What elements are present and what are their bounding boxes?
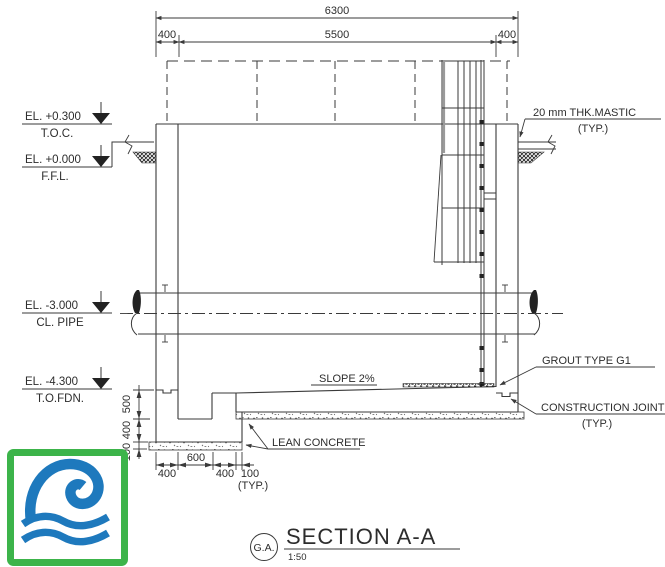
mastic-typ-label: (TYP.) (578, 123, 608, 135)
dim-right-wall: 400 (498, 29, 516, 41)
lean-leader-lower (246, 445, 268, 449)
drawing-title: G.A. SECTION A-A 1:50 (251, 524, 461, 563)
dim-interior: 5500 (325, 29, 349, 41)
dim-b1: 400 (158, 468, 176, 480)
elevation-markers (22, 102, 112, 389)
ground-left (112, 135, 156, 167)
mastic-leader (520, 119, 525, 137)
note-grout: GROUT TYPE G1 (500, 355, 655, 385)
drawing-sheet: 6300 400 5500 400 (0, 0, 665, 567)
break-symbol (548, 135, 555, 154)
roof-hidden-outline (167, 61, 510, 123)
lean-concrete-pit (149, 442, 242, 450)
elevation-triangle (92, 302, 110, 313)
ground-right (518, 135, 556, 163)
note-mastic: 20 mm THK.MASTIC (TYP.) (520, 107, 661, 137)
title-bubble-label: G.A. (253, 542, 274, 554)
label-pipe-ref: CL. PIPE (36, 317, 84, 329)
dim-b-typ: (TYP.) (238, 480, 268, 492)
grout-label: GROUT TYPE G1 (542, 355, 631, 367)
mastic-label: 20 mm THK.MASTIC (533, 107, 636, 119)
dim-pit-slab: 400 (121, 421, 133, 439)
dim-b2: 600 (187, 452, 205, 464)
label-ffl-ref: F.F.L. (41, 171, 68, 183)
section-a-a-drawing: 6300 400 5500 400 (0, 0, 665, 567)
title-text: SECTION A-A (286, 524, 436, 549)
dim-b3: 400 (216, 468, 234, 480)
lean-leader-upper (249, 424, 268, 449)
note-construction-joint: CONSTRUCTION JOINT (TYP.) (511, 399, 665, 430)
note-slope: SLOPE 2% (311, 373, 377, 385)
label-fdn-ref: T.O.FDN. (36, 393, 84, 405)
label-toc-el: EL. +0.300 (25, 111, 81, 123)
pipe-break-left (133, 290, 141, 313)
elevation-triangle (92, 156, 110, 167)
label-fdn-el: EL. -4.300 (25, 376, 78, 388)
slope-label: SLOPE 2% (319, 373, 375, 385)
title-scale: 1:50 (288, 552, 307, 563)
label-ffl-el: EL. +0.000 (25, 154, 81, 166)
dim-overall: 6300 (325, 5, 349, 17)
cj-typ-label: (TYP.) (582, 418, 612, 430)
dim-b4: 100 (241, 468, 259, 480)
ladder (434, 60, 496, 386)
lean-label: LEAN CONCRETE (272, 437, 366, 449)
note-lean-concrete: LEAN CONCRETE (246, 424, 366, 449)
lean-concrete-slab (236, 412, 524, 419)
elevation-triangle (92, 113, 110, 124)
label-pipe-el: EL. -3.000 (25, 300, 78, 312)
grout-layer (403, 384, 494, 388)
mastic-hatch-left (133, 152, 156, 163)
construction-joint-notch (496, 393, 518, 397)
break-symbol (125, 135, 132, 154)
wave-logo (11, 453, 125, 563)
dim-left-wall: 400 (158, 29, 176, 41)
dim-pit-depth: 500 (121, 395, 133, 413)
sloped-floor-line (236, 387, 496, 394)
mastic-hatch-right (518, 152, 544, 163)
cj-label: CONSTRUCTION JOINT (541, 402, 665, 414)
label-toc-ref: T.O.C. (41, 128, 74, 140)
elevation-triangle (92, 378, 110, 389)
waterstop-joint-left (156, 390, 178, 393)
